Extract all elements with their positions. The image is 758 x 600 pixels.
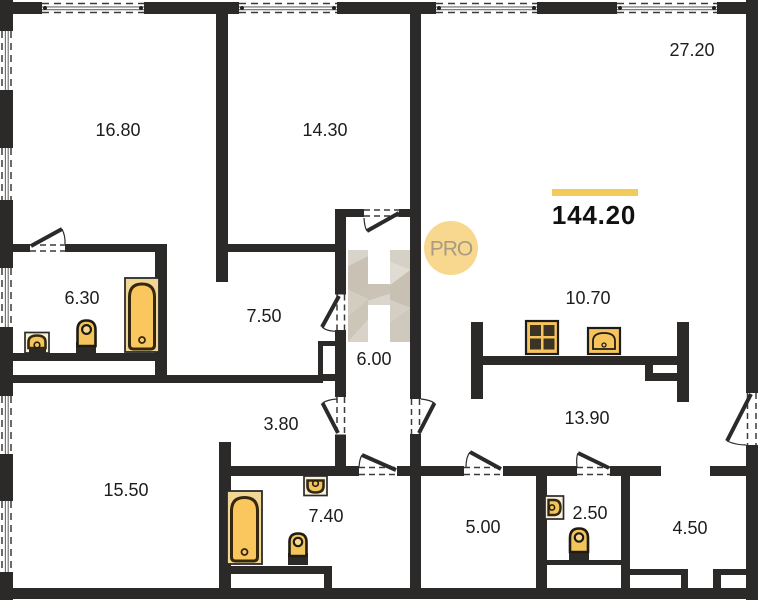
svg-text:7.40: 7.40 <box>308 506 343 526</box>
svg-text:144.20: 144.20 <box>552 200 636 230</box>
svg-text:15.50: 15.50 <box>103 480 148 500</box>
svg-text:5.00: 5.00 <box>465 517 500 537</box>
svg-text:27.20: 27.20 <box>669 40 714 60</box>
svg-text:14.30: 14.30 <box>302 120 347 140</box>
svg-text:13.90: 13.90 <box>564 408 609 428</box>
svg-text:16.80: 16.80 <box>95 120 140 140</box>
svg-text:7.50: 7.50 <box>246 306 281 326</box>
svg-text:4.50: 4.50 <box>672 518 707 538</box>
svg-text:PRO: PRO <box>430 238 473 261</box>
svg-text:6.00: 6.00 <box>356 349 391 369</box>
svg-text:3.80: 3.80 <box>263 414 298 434</box>
svg-text:6.30: 6.30 <box>64 288 99 308</box>
svg-text:2.50: 2.50 <box>572 503 607 523</box>
svg-text:10.70: 10.70 <box>565 288 610 308</box>
